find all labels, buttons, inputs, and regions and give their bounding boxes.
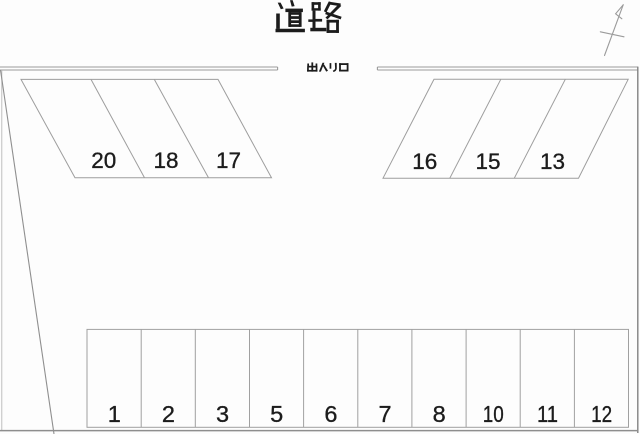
svg-text:5: 5 [270,401,283,427]
svg-text:16: 16 [412,149,437,174]
svg-text:6: 6 [324,401,337,427]
svg-text:20: 20 [91,148,116,173]
svg-text:15: 15 [475,149,500,174]
svg-text:10: 10 [483,401,504,427]
svg-text:17: 17 [216,148,241,173]
svg-text:18: 18 [153,148,178,173]
svg-text:2: 2 [162,401,175,427]
svg-text:11: 11 [537,401,558,427]
svg-text:13: 13 [540,149,565,174]
svg-text:12: 12 [591,401,612,427]
svg-text:3: 3 [216,401,229,427]
svg-text:8: 8 [433,401,446,427]
svg-text:7: 7 [378,401,391,427]
svg-text:1: 1 [108,401,121,427]
